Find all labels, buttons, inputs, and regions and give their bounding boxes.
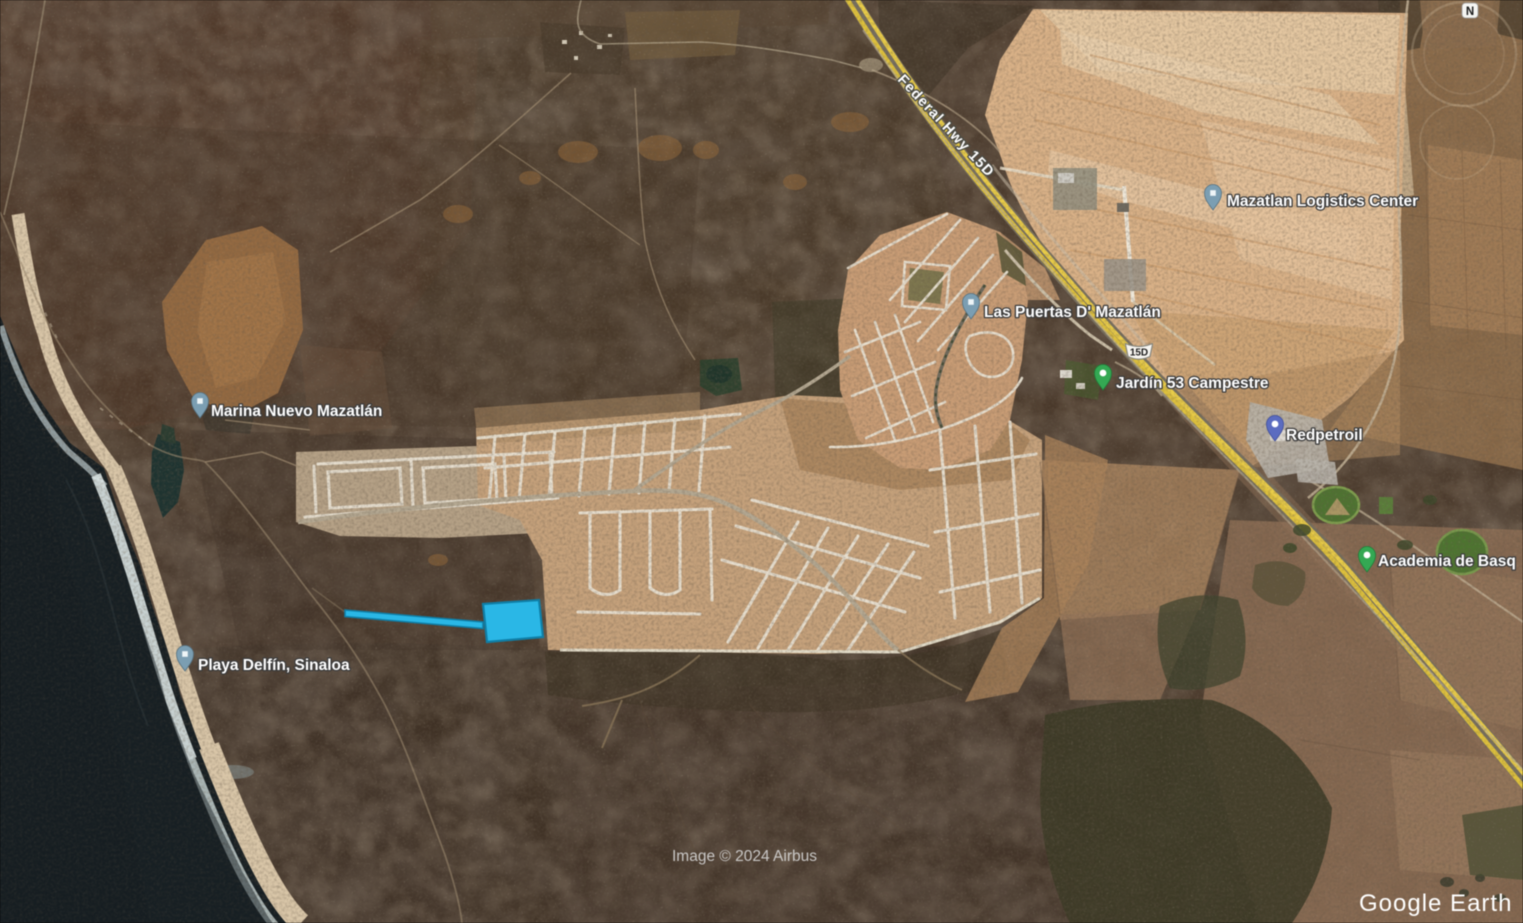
svg-text:Jardín 53 Campestre: Jardín 53 Campestre — [1116, 375, 1269, 392]
svg-text:Playa Delfín, Sinaloa: Playa Delfín, Sinaloa — [198, 657, 350, 674]
svg-text:N: N — [1466, 6, 1474, 18]
svg-text:15D: 15D — [1130, 348, 1148, 359]
svg-text:Redpetroil: Redpetroil — [1286, 427, 1363, 444]
svg-text:Mazatlan Logistics Center: Mazatlan Logistics Center — [1227, 193, 1418, 210]
svg-text:Las Puertas D' Mazatlán: Las Puertas D' Mazatlán — [984, 304, 1161, 321]
svg-text:Image © 2024 Airbus: Image © 2024 Airbus — [672, 848, 817, 865]
svg-text:Google Earth: Google Earth — [1359, 890, 1512, 917]
svg-text:Marina Nuevo Mazatlán: Marina Nuevo Mazatlán — [211, 403, 382, 420]
svg-text:Academia de Basq: Academia de Basq — [1378, 553, 1516, 570]
